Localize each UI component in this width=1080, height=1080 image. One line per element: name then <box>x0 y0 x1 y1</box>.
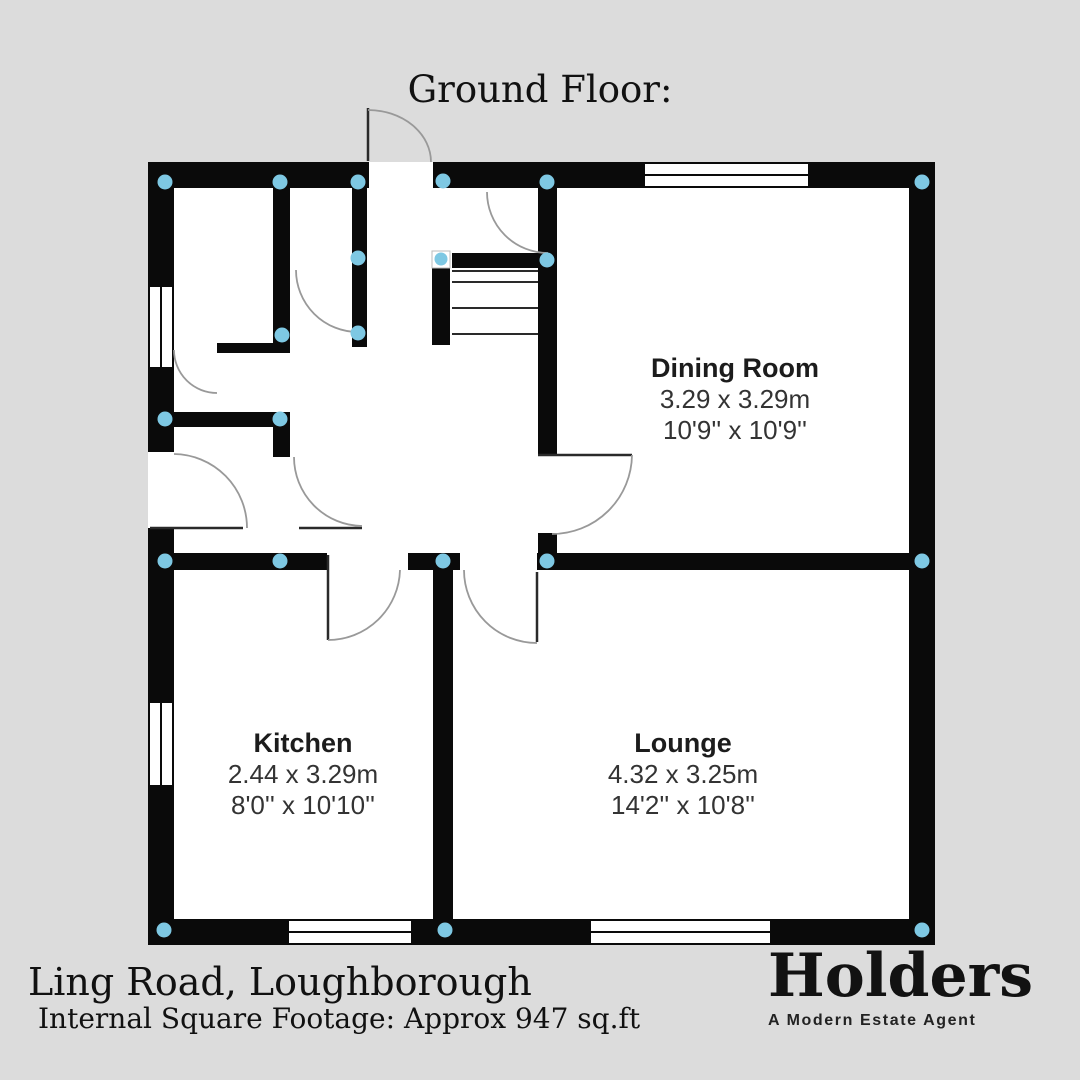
junction-dot <box>540 554 555 569</box>
room-label-kitchen: Kitchen 2.44 x 3.29m 8'0'' x 10'10'' <box>228 727 378 821</box>
room-name: Lounge <box>608 727 758 759</box>
wall-lounge-dining-divider <box>537 553 935 570</box>
wall-closet-b-east <box>352 188 367 347</box>
junction-dot <box>915 554 930 569</box>
room-size-imperial: 14'2'' x 10'8'' <box>608 790 758 821</box>
junction-dot <box>273 175 288 190</box>
wall-stairs-post <box>432 268 450 345</box>
junction-dot <box>157 923 172 938</box>
junction-dot <box>915 923 930 938</box>
brand-logo: Holders A Modern Estate Agent <box>768 944 1033 1030</box>
wall-kitchen-lounge-divider <box>433 570 453 919</box>
junction-dot <box>275 328 290 343</box>
side-door-opening <box>148 452 174 528</box>
wall-kitchen-north <box>148 553 327 570</box>
front-door-arc <box>368 110 431 162</box>
room-size-metric: 3.29 x 3.29m <box>651 384 819 415</box>
junction-dot <box>273 554 288 569</box>
junction-dot <box>540 253 555 268</box>
room-label-lounge: Lounge 4.32 x 3.25m 14'2'' x 10'8'' <box>608 727 758 821</box>
room-size-metric: 4.32 x 3.25m <box>608 759 758 790</box>
room-size-imperial: 8'0'' x 10'10'' <box>228 790 378 821</box>
wall-mid-segment <box>408 553 460 570</box>
wall-dining-west-upper <box>538 188 557 455</box>
junction-dot <box>273 412 288 427</box>
floorplan-page: Ground Floor: Dining Room 3.29 x 3.29m 1… <box>0 0 1080 1080</box>
square-footage: Internal Square Footage: Approx 947 sq.f… <box>38 1002 640 1035</box>
junction-dot <box>435 253 448 266</box>
brand-tagline: A Modern Estate Agent <box>768 1012 1033 1030</box>
room-name: Dining Room <box>651 352 819 384</box>
junction-dot <box>436 174 451 189</box>
property-address: Ling Road, Loughborough <box>28 960 532 1004</box>
room-name: Kitchen <box>228 727 378 759</box>
junction-dot <box>351 251 366 266</box>
page-title: Ground Floor: <box>408 68 673 111</box>
floorplan-drawing <box>0 0 1080 1080</box>
junction-dot <box>438 923 453 938</box>
junction-dot <box>158 175 173 190</box>
room-label-dining: Dining Room 3.29 x 3.29m 10'9'' x 10'9'' <box>651 352 819 446</box>
junction-dot <box>915 175 930 190</box>
room-size-metric: 2.44 x 3.29m <box>228 759 378 790</box>
junction-dot <box>436 554 451 569</box>
room-size-imperial: 10'9'' x 10'9'' <box>651 415 819 446</box>
wall-stairs-top <box>452 253 542 268</box>
wall-closet-a-south <box>217 343 290 353</box>
junction-dot <box>351 326 366 341</box>
junction-dot <box>540 175 555 190</box>
junction-dot <box>158 554 173 569</box>
junction-dot <box>158 412 173 427</box>
brand-name: Holders <box>768 944 1033 1008</box>
front-door-opening <box>369 162 433 188</box>
junction-dot <box>351 175 366 190</box>
